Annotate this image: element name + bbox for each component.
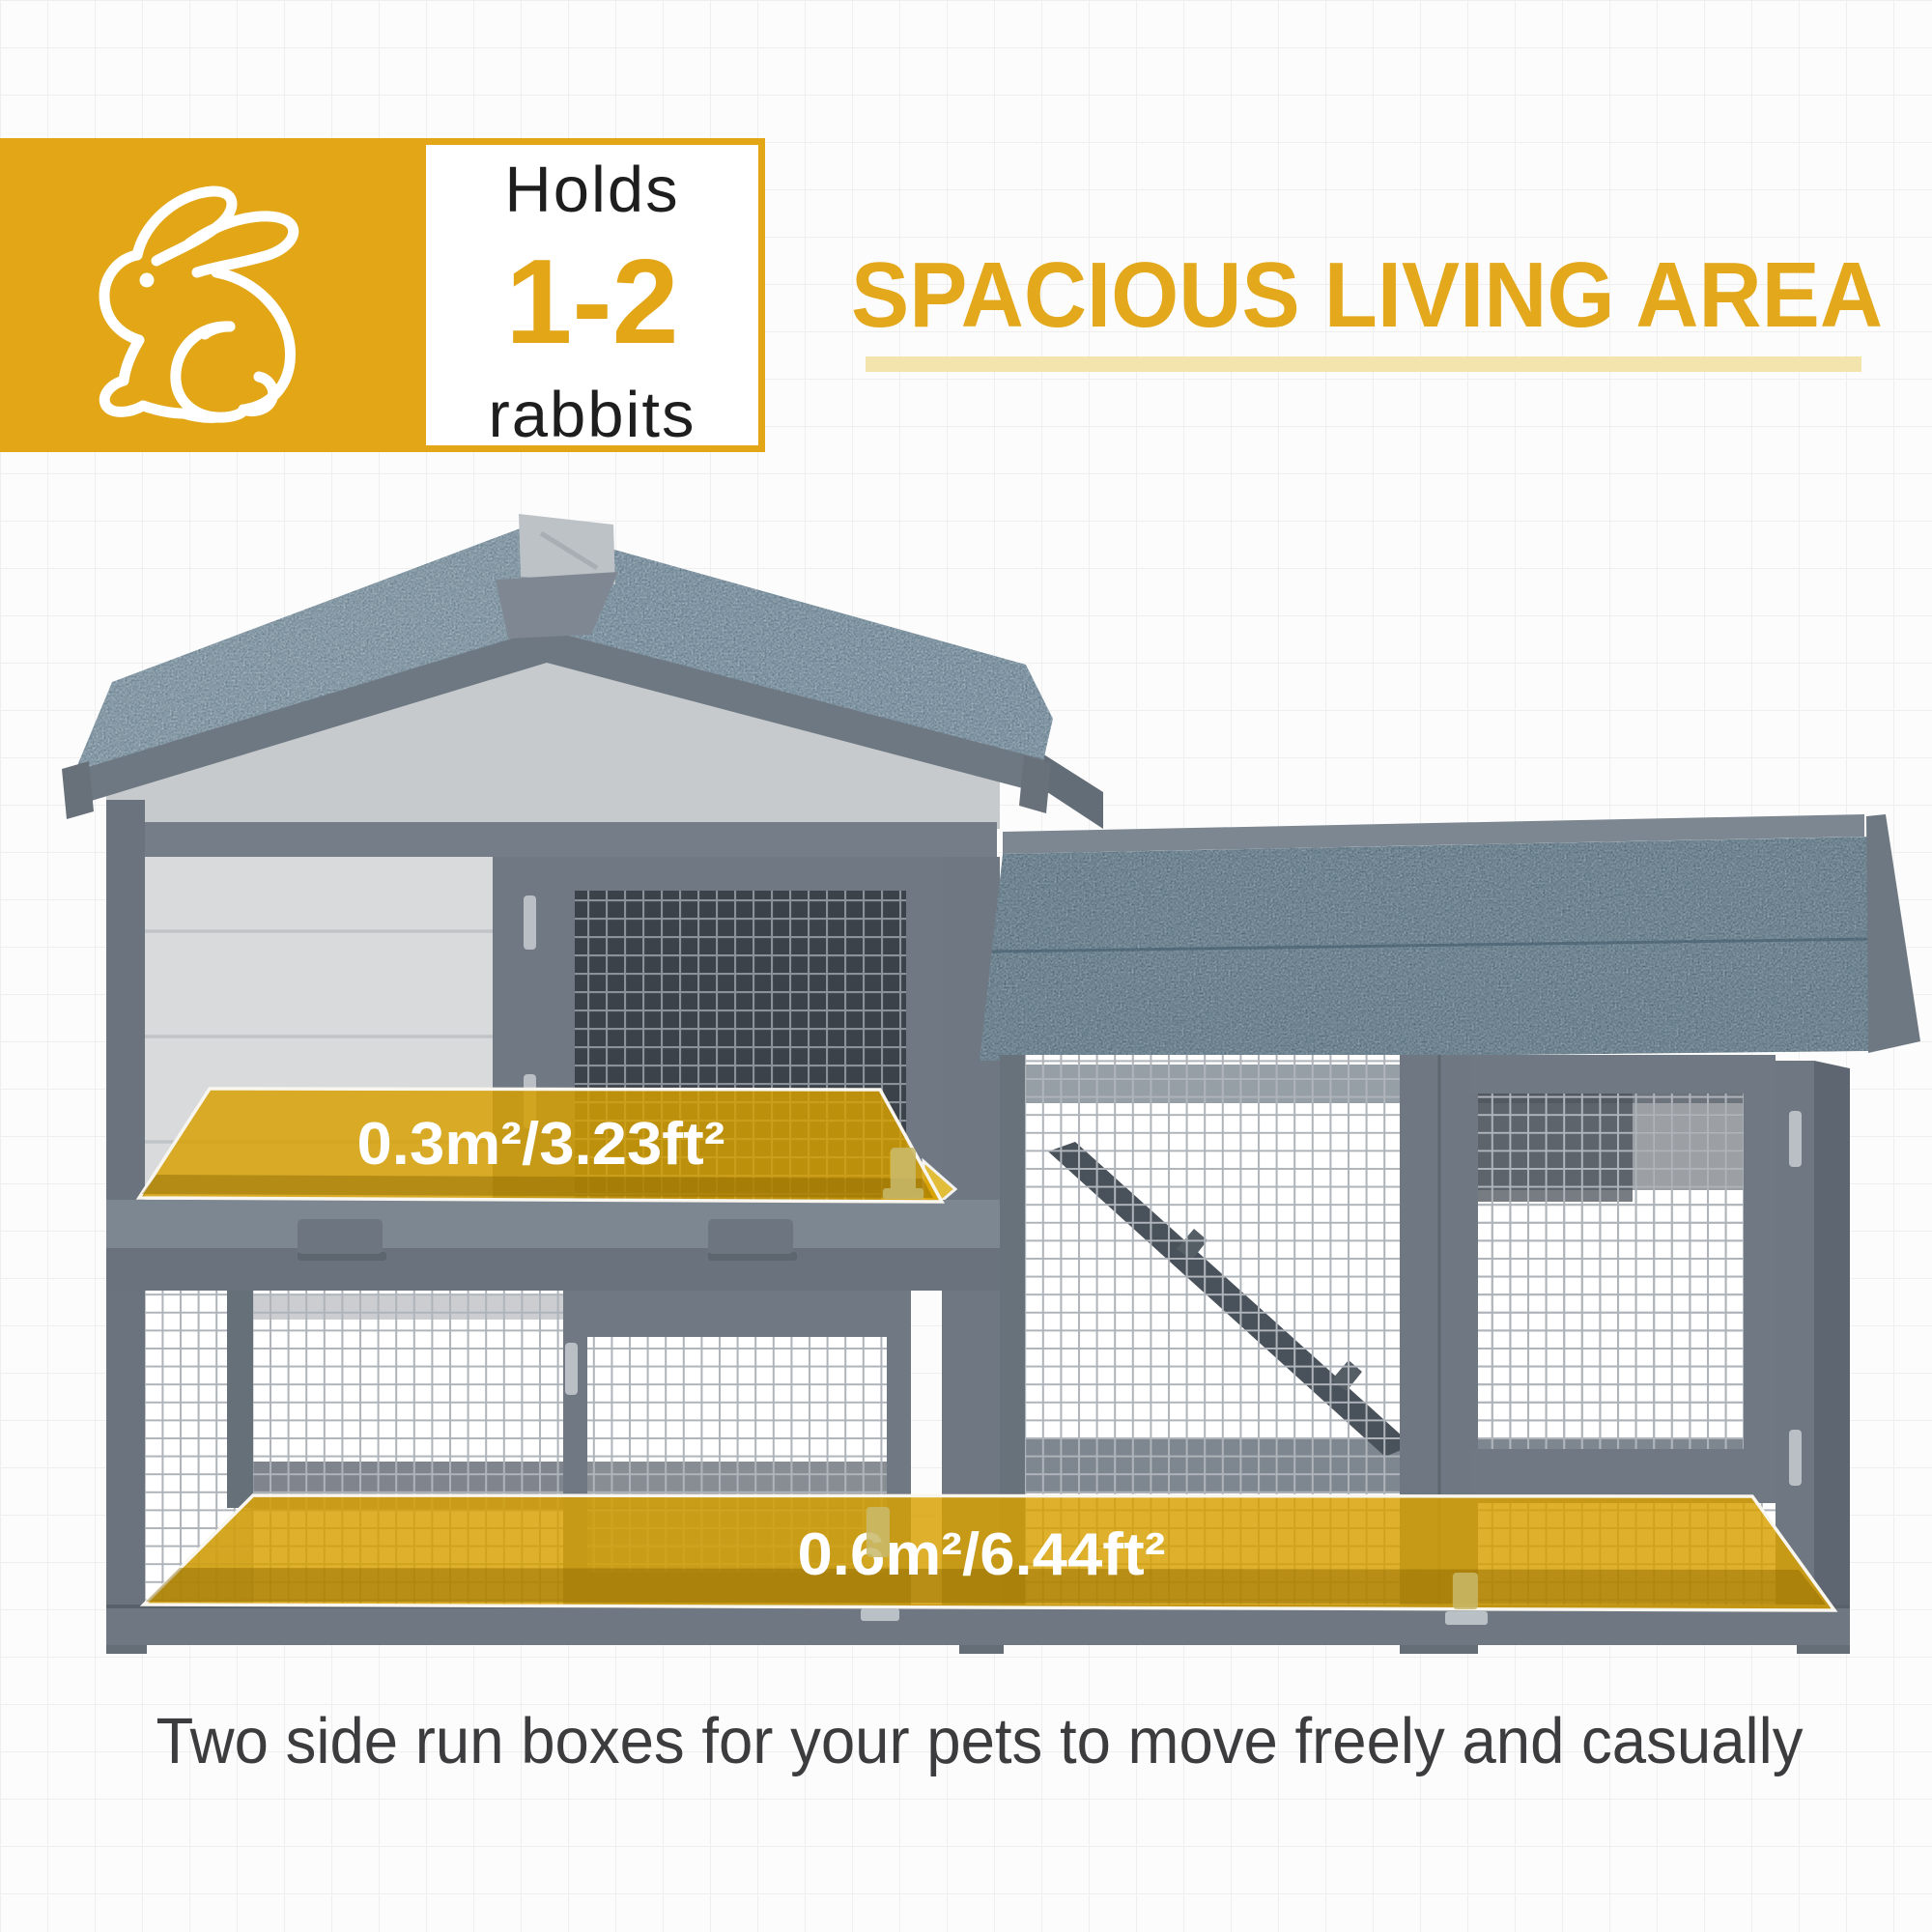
svg-text:Holds: Holds	[504, 154, 679, 226]
svg-text:Two side run boxes for your pe: Two side run boxes for your pets to move…	[156, 1705, 1804, 1777]
svg-text:0.3m²/3.23ft²: 0.3m²/3.23ft²	[357, 1111, 725, 1178]
svg-text:SPACIOUS LIVING AREA: SPACIOUS LIVING AREA	[851, 243, 1883, 347]
svg-text:1-2: 1-2	[505, 236, 678, 369]
svg-text:0.6m²/6.44ft²: 0.6m²/6.44ft²	[798, 1521, 1166, 1588]
svg-text:rabbits: rabbits	[488, 379, 696, 451]
